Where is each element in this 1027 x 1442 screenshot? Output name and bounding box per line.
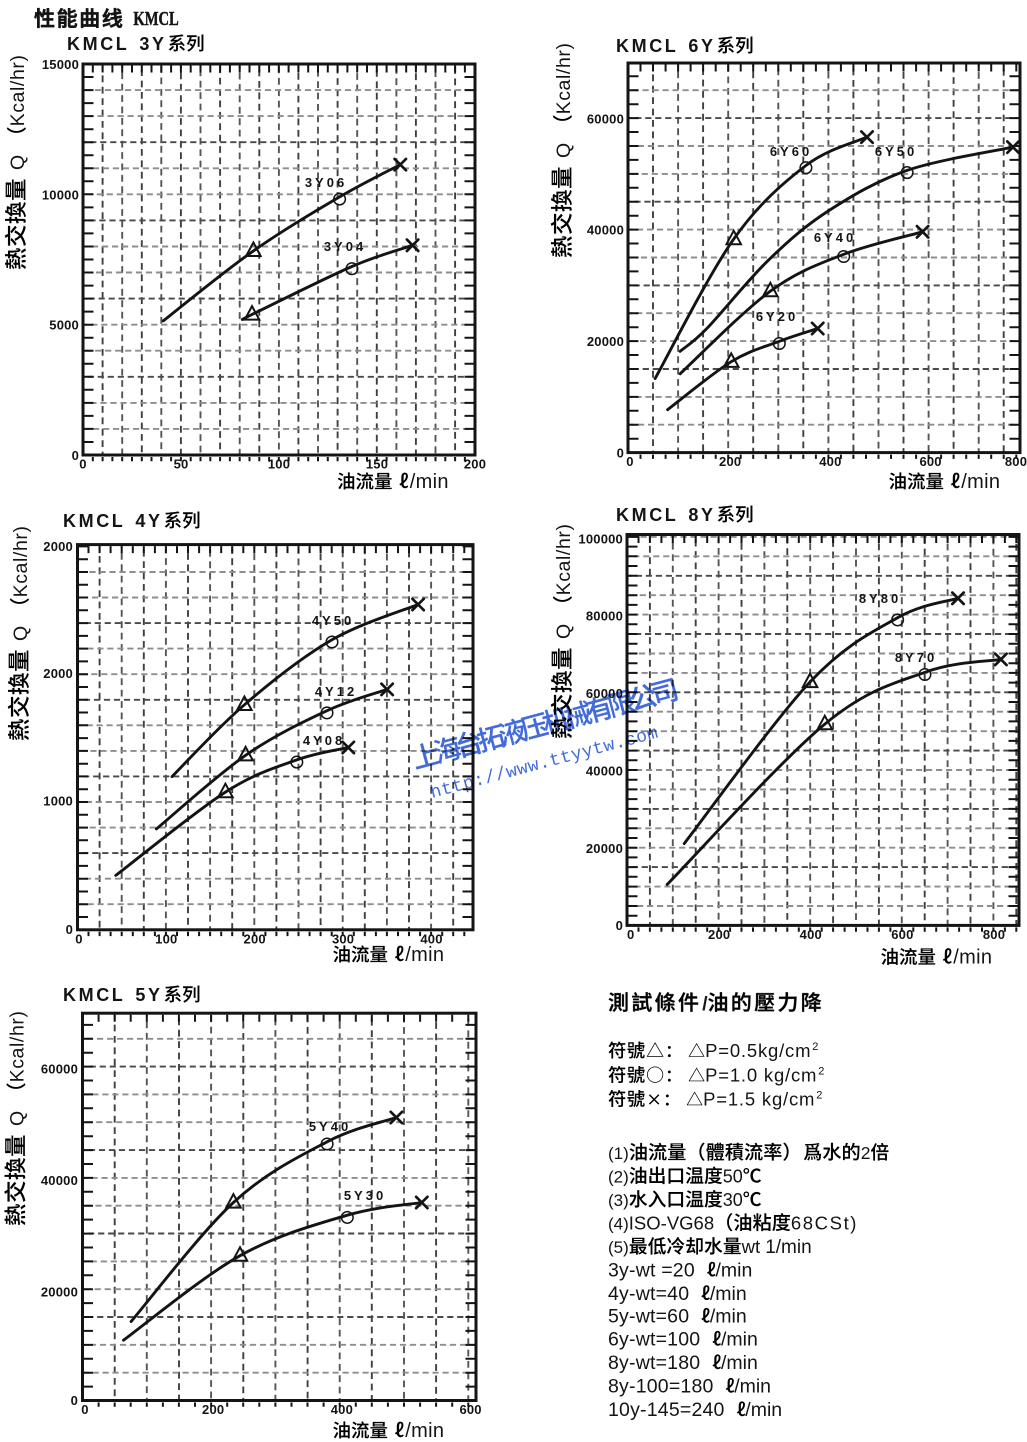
svg-text:2: 2 — [861, 1143, 871, 1163]
svg-text:2: 2 — [816, 1090, 822, 1102]
svg-text:ISO-VG68: ISO-VG68 — [629, 1213, 714, 1234]
svg-text:600: 600 — [919, 454, 941, 469]
svg-text:5Y: 5Y — [135, 985, 162, 1005]
svg-text:(4): (4) — [608, 1215, 629, 1234]
svg-text:200: 200 — [708, 927, 730, 942]
svg-text:/min: /min — [405, 944, 444, 966]
svg-text:100: 100 — [155, 931, 177, 946]
svg-text:40000: 40000 — [41, 1173, 78, 1188]
svg-text:/min: /min — [710, 1306, 747, 1328]
svg-text:0: 0 — [81, 1402, 88, 1417]
svg-text:/min: /min — [710, 1283, 747, 1305]
svg-text:200: 200 — [464, 457, 486, 472]
svg-text:0: 0 — [79, 457, 86, 472]
svg-text:8Y70: 8Y70 — [895, 650, 937, 665]
svg-text:8Y: 8Y — [688, 505, 715, 525]
svg-text:/min: /min — [721, 1352, 758, 1374]
svg-text:5Y30: 5Y30 — [344, 1188, 386, 1203]
svg-text:8Y80: 8Y80 — [859, 591, 901, 606]
svg-text:KMCL: KMCL — [616, 36, 678, 56]
svg-text:40000: 40000 — [586, 763, 623, 778]
svg-text:Q: Q — [7, 154, 29, 170]
svg-text:20000: 20000 — [41, 1284, 78, 1299]
svg-text:Q: Q — [553, 142, 575, 158]
svg-text:6Y60: 6Y60 — [770, 144, 812, 159]
svg-text:1000: 1000 — [43, 794, 73, 809]
svg-text:Kcal/hr): Kcal/hr) — [7, 54, 29, 126]
svg-text:8y-100=180: 8y-100=180 — [608, 1376, 714, 1398]
svg-text:30: 30 — [723, 1190, 743, 1210]
svg-text:400: 400 — [800, 927, 822, 942]
svg-text:5Y40: 5Y40 — [309, 1119, 351, 1134]
svg-text:150: 150 — [366, 457, 388, 472]
svg-text:0: 0 — [71, 1393, 78, 1408]
svg-text:KMCL: KMCL — [616, 505, 678, 525]
svg-text:(3): (3) — [608, 1191, 629, 1210]
svg-text:(1): (1) — [608, 1144, 629, 1163]
svg-text:0: 0 — [72, 448, 79, 463]
svg-text:2000: 2000 — [43, 539, 73, 554]
svg-text:Kcal/hr): Kcal/hr) — [553, 523, 575, 595]
svg-text:600: 600 — [891, 927, 913, 942]
svg-text:/min: /min — [734, 1376, 771, 1398]
svg-text:4y-wt=40: 4y-wt=40 — [608, 1283, 689, 1305]
svg-text:20000: 20000 — [587, 334, 624, 349]
svg-text:6Y: 6Y — [688, 36, 715, 56]
svg-text:KMCL: KMCL — [67, 34, 129, 54]
svg-text:/min: /min — [745, 1399, 782, 1421]
svg-text:Kcal/hr): Kcal/hr) — [7, 1010, 29, 1082]
svg-text:5000: 5000 — [49, 318, 79, 333]
svg-text:100000: 100000 — [578, 531, 623, 546]
svg-text:0: 0 — [626, 454, 633, 469]
svg-text:/: / — [702, 994, 708, 1015]
svg-text:2000: 2000 — [43, 666, 73, 681]
svg-text:50: 50 — [174, 457, 189, 472]
svg-text:800: 800 — [1005, 454, 1027, 469]
svg-text:/min: /min — [716, 1259, 753, 1281]
svg-text:0: 0 — [66, 922, 73, 937]
svg-text:6y-wt=100: 6y-wt=100 — [608, 1329, 700, 1351]
svg-text:50: 50 — [723, 1167, 743, 1187]
svg-text:P=0.5kg/cm: P=0.5kg/cm — [705, 1040, 811, 1061]
svg-text:60000: 60000 — [587, 111, 624, 126]
svg-text:(5): (5) — [608, 1238, 629, 1257]
svg-text:P=1.5 kg/cm: P=1.5 kg/cm — [703, 1089, 815, 1110]
svg-text:P=1.0 kg/cm: P=1.0 kg/cm — [705, 1065, 817, 1086]
svg-text:5y-wt=60: 5y-wt=60 — [608, 1306, 689, 1328]
svg-text:KMCL: KMCL — [63, 985, 125, 1005]
svg-text:0: 0 — [75, 931, 82, 946]
svg-text:600: 600 — [459, 1402, 481, 1417]
svg-text:/min: /min — [953, 947, 992, 969]
svg-text:400: 400 — [331, 1402, 353, 1417]
svg-text:6Y40: 6Y40 — [814, 230, 856, 245]
svg-text:8y-wt=180: 8y-wt=180 — [608, 1352, 700, 1374]
svg-text:Kcal/hr): Kcal/hr) — [10, 525, 32, 597]
svg-text:6Y50: 6Y50 — [875, 144, 917, 159]
svg-text:KMCL: KMCL — [133, 7, 178, 30]
svg-text:800: 800 — [983, 927, 1005, 942]
svg-text:2: 2 — [812, 1041, 818, 1053]
svg-text:80000: 80000 — [586, 608, 623, 623]
svg-text:40000: 40000 — [587, 223, 624, 238]
svg-text:20000: 20000 — [586, 841, 623, 856]
svg-text:0: 0 — [616, 918, 623, 933]
svg-text:1/min: 1/min — [765, 1237, 811, 1258]
svg-text:Kcal/hr): Kcal/hr) — [553, 42, 575, 114]
svg-text:Q: Q — [553, 623, 575, 639]
svg-text:200: 200 — [719, 454, 741, 469]
svg-text:10000: 10000 — [42, 188, 79, 203]
svg-text:4Y50: 4Y50 — [312, 613, 354, 628]
svg-text:/min: /min — [721, 1329, 758, 1351]
svg-text:300: 300 — [332, 931, 354, 946]
svg-text:3y-wt =20: 3y-wt =20 — [608, 1259, 695, 1281]
svg-text:3Y06: 3Y06 — [305, 175, 347, 190]
svg-text:/min: /min — [405, 1420, 444, 1442]
svg-text:200: 200 — [202, 1402, 224, 1417]
svg-text:200: 200 — [244, 931, 266, 946]
svg-text:15000: 15000 — [42, 57, 79, 72]
svg-text:0: 0 — [627, 927, 634, 942]
svg-text:Q: Q — [10, 625, 32, 641]
svg-text:3Y04: 3Y04 — [324, 239, 366, 254]
svg-text:4Y08: 4Y08 — [303, 733, 345, 748]
svg-text:/min: /min — [410, 471, 449, 493]
svg-text:(2): (2) — [608, 1168, 629, 1187]
svg-text:/min: /min — [961, 471, 1000, 493]
svg-text:10y-145=240: 10y-145=240 — [608, 1399, 725, 1421]
svg-text:4Y12: 4Y12 — [315, 684, 357, 699]
svg-text:400: 400 — [819, 454, 841, 469]
svg-text:wt: wt — [741, 1236, 761, 1257]
svg-text:68CSt): 68CSt) — [791, 1213, 858, 1234]
svg-text:60000: 60000 — [41, 1062, 78, 1077]
svg-text:2: 2 — [818, 1066, 824, 1078]
svg-text:KMCL: KMCL — [63, 511, 125, 531]
svg-text:6Y20: 6Y20 — [756, 309, 798, 324]
svg-text:0: 0 — [617, 445, 624, 460]
svg-text:4Y: 4Y — [135, 511, 162, 531]
svg-text:Q: Q — [7, 1110, 29, 1126]
svg-text:3Y: 3Y — [139, 34, 166, 54]
svg-text:100: 100 — [268, 457, 290, 472]
